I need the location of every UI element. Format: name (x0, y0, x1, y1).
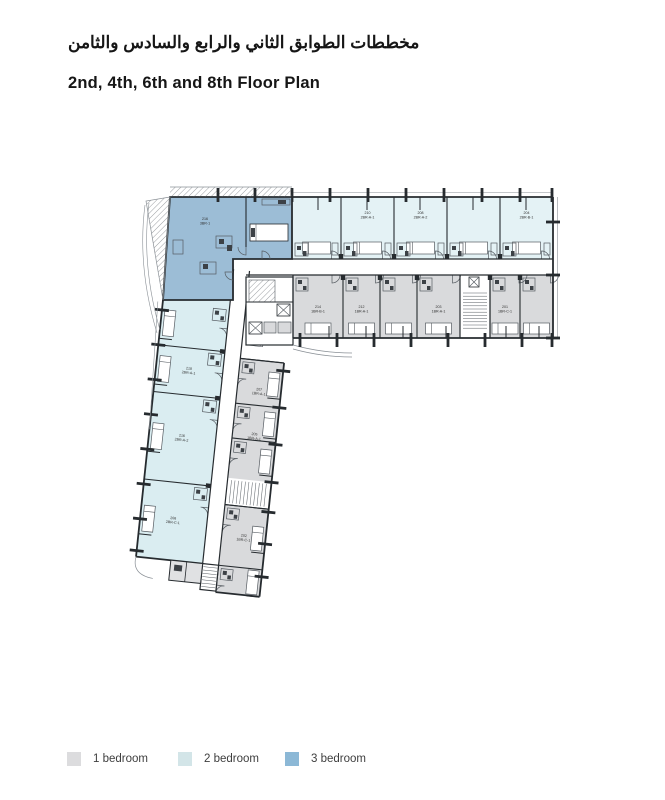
legend-swatch-1-bedroom (67, 752, 81, 766)
legend-swatch-2-bedroom (178, 752, 192, 766)
legend-item-1-bedroom: 1 bedroom (67, 752, 148, 766)
legend-label-3-bedroom: 3 bedroom (311, 753, 366, 765)
legend-label-1-bedroom: 1 bedroom (93, 753, 148, 765)
legend-item-2-bedroom: 2 bedroom (178, 752, 259, 766)
legend-swatch-3-bedroom (285, 752, 299, 766)
unit-type-legend: 1 bedroom 2 bedroom 3 bedroom (0, 752, 665, 774)
legend-item-3-bedroom: 3 bedroom (285, 752, 366, 766)
floor-plan-drawing: 2182BR-A-12162BR-A-22062BR-C-12071BR-A-1… (0, 0, 665, 800)
legend-label-2-bedroom: 2 bedroom (204, 753, 259, 765)
